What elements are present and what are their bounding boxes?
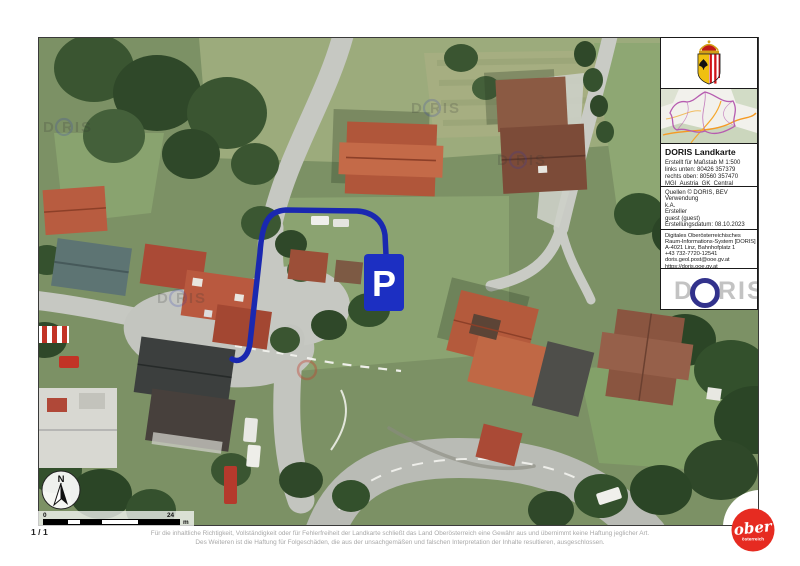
aerial-photo-map[interactable]: D RIS D RIS D RIS D RIS P [38,37,759,526]
scale-bar-segments [43,519,180,525]
doris-logo-letters-ris: RIS [718,277,758,306]
creator-label: Ersteller [665,209,753,216]
usage-label: Verwendung [665,196,753,203]
striped-awning [39,326,69,343]
disclaimer-text: Für die inhaltliche Richtigkeit, Vollstä… [0,529,800,547]
ober-oesterreich-logo-icon: ober österreich [730,507,776,553]
ober-logo-subtext: österreich [742,537,764,542]
oberoesterreich-logo: ober österreich [730,507,776,553]
parking-marker-label: P [372,263,396,304]
map-title: DORIS Landkarte [665,147,753,157]
building [43,186,108,235]
overview-map [661,89,757,143]
org-name-1: Digitales Oberösterreichisches [665,233,753,239]
org-name-2: Raum-Informations-System [DORIS] [665,239,753,245]
extent-lower-left: links unten: 80426 357379 [665,167,753,174]
scale-end-label: 24 [167,512,174,519]
coat-of-arms-box [660,37,758,89]
creator-value: guest (guest) [665,216,753,223]
aerial-scene: D RIS D RIS D RIS D RIS P [39,38,759,526]
parking-marker[interactable]: P [364,254,404,311]
compass-rose: N [40,467,84,513]
usage-value: k.A. [665,203,753,210]
north-arrow-icon: N [40,467,84,513]
disclaimer-line-2: Des Weiteren ist die Haftung für Folgesc… [0,538,800,547]
upper-austria-coat-of-arms-icon [694,40,724,86]
map-title-box: DORIS Landkarte Erstellt für Maßstab M 1… [660,143,758,187]
building [331,109,445,197]
disclaimer-line-1: Für die inhaltliche Richtigkeit, Vollstä… [0,529,800,538]
doris-map-print-page: D RIS D RIS D RIS D RIS P [0,0,800,566]
doris-logo-box: D RIS [660,268,758,310]
scale-info: Erstellt für Maßstab M 1:500 [665,160,753,167]
scale-bar: 0 24 m [36,511,194,527]
scale-unit-label: m [183,519,189,526]
map-info-sidebar: DORIS Landkarte Erstellt für Maßstab M 1… [660,37,758,310]
extent-upper-right: rechts oben: 80560 357470 [665,174,753,181]
building [39,388,117,468]
overview-map-box [660,88,758,144]
doris-logo-ring-icon [690,278,720,308]
scale-start-label: 0 [43,512,47,519]
contact-info-box: Digitales Oberösterreichisches Raum-Info… [660,229,758,269]
source-info-box: Quellen © DORIS, BEV Verwendung k.A. Ers… [660,186,758,230]
creation-date: Erstellungsdatum: 08.10.2023 [665,222,753,229]
sources: Quellen © DORIS, BEV [665,190,753,197]
